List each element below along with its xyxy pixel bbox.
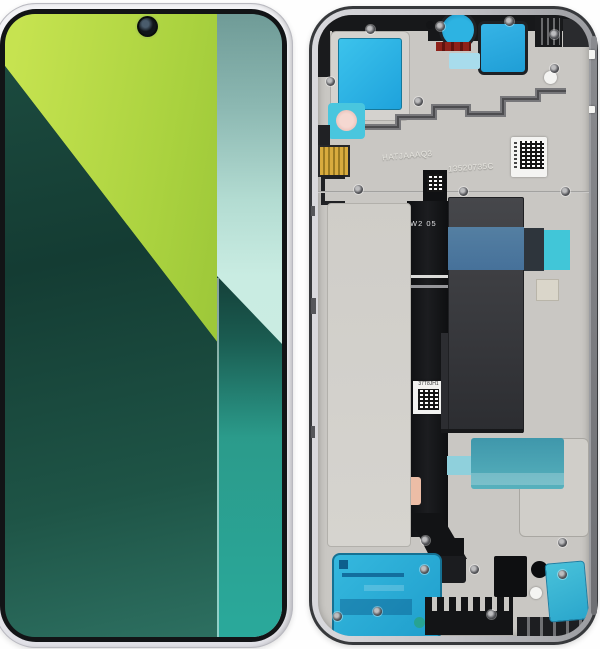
edge-sticker — [588, 106, 595, 113]
rim-right-edge — [591, 36, 597, 615]
screw — [459, 187, 468, 196]
etched-antenna-trace — [338, 77, 573, 132]
flex-white-line — [407, 285, 448, 288]
round-sticker — [530, 587, 542, 599]
screw — [550, 30, 559, 39]
qr-pattern-icon — [418, 389, 439, 410]
wallpaper-teal-strip — [217, 14, 282, 637]
screw — [558, 570, 567, 579]
front-phone-bezel — [0, 9, 287, 642]
left-black-patch — [318, 23, 330, 77]
patch-mark — [339, 560, 348, 569]
patch-line — [342, 573, 404, 577]
antenna-contact-teeth — [425, 597, 513, 611]
wallpaper-strip-edge-line — [217, 278, 219, 637]
qr-side-text — [514, 142, 517, 168]
wallpaper-dark-teal-band — [217, 14, 282, 637]
screw — [354, 185, 363, 194]
qr-code-sticker-flex: 37T8JH1 — [413, 381, 444, 414]
punch-hole-camera-icon — [137, 16, 158, 37]
screw — [550, 64, 559, 73]
screw — [366, 25, 375, 34]
front-phone — [0, 3, 293, 648]
panel-bottom-edge — [441, 429, 523, 433]
front-phone-screen — [5, 14, 282, 637]
pink-membrane — [336, 110, 357, 131]
screw — [487, 610, 496, 619]
screw — [558, 538, 567, 547]
screw — [420, 565, 429, 574]
screw — [470, 565, 479, 574]
left-plate-region — [327, 203, 411, 547]
rim-notch — [311, 206, 315, 216]
rear-frame-assembly: HATJAAAQ3 13520735C W2 05 37T8JH1 — [309, 6, 598, 645]
patch-highlight — [364, 585, 404, 591]
rim-notch — [311, 426, 315, 438]
steel-blue-adhesive-band — [448, 227, 524, 270]
edge-sticker — [588, 50, 595, 59]
qr-pattern-icon — [520, 141, 544, 169]
etched-code-left: HATJAAAQ3 — [382, 149, 433, 162]
flex-white-line — [407, 275, 448, 278]
dark-slate-square — [524, 228, 544, 271]
gold-flex-connector — [318, 145, 350, 177]
product-photo: HATJAAAQ3 13520735C W2 05 37T8JH1 — [0, 0, 600, 649]
beige-sticker — [536, 279, 559, 301]
teal-adhesive-patch — [471, 438, 564, 489]
antenna-contact-base — [425, 611, 513, 635]
flex-cable-neck — [423, 170, 447, 205]
flex-marking: W2 05 — [410, 219, 437, 228]
teal-dot — [414, 617, 425, 628]
adhesive-patch-bottom-right — [545, 560, 589, 622]
red-seal-sticker — [436, 42, 471, 51]
black-bracket — [318, 125, 330, 147]
qr-label-small — [427, 174, 443, 192]
screw — [326, 77, 335, 86]
rear-frame-plate: HATJAAAQ3 13520735C W2 05 37T8JH1 — [318, 15, 589, 636]
teal-tab — [447, 456, 472, 475]
screw — [333, 612, 342, 621]
black-ic-block — [494, 556, 527, 597]
screw — [436, 22, 445, 31]
bright-cyan-patch — [544, 230, 570, 270]
screw — [561, 187, 570, 196]
screw — [414, 97, 423, 106]
qr-code-sticker-top — [511, 137, 547, 177]
black-u-bracket — [321, 175, 345, 205]
flex-sticker-code: 37T8JH1 — [413, 381, 444, 387]
teal-patch-highlight — [471, 473, 564, 485]
mic-hole — [426, 21, 434, 29]
right-black-patch — [563, 19, 589, 47]
rim-notch — [311, 298, 316, 314]
screw — [421, 536, 430, 545]
screw — [505, 17, 514, 26]
etched-code-right: 13520735C — [448, 161, 494, 173]
sensor-window-adhesive — [478, 21, 528, 75]
screw — [373, 607, 382, 616]
light-blue-patch — [449, 53, 480, 69]
